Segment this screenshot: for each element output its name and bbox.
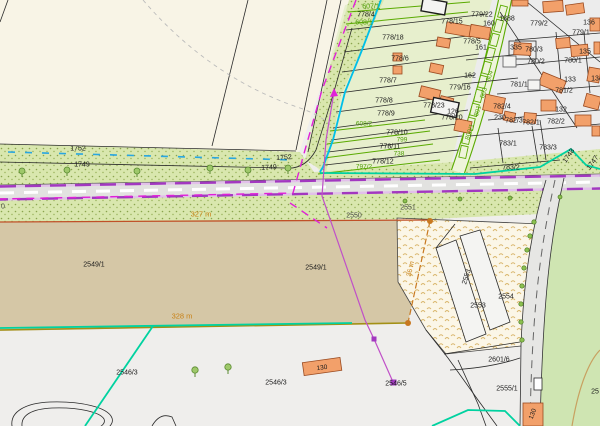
map-viewport[interactable]: 1752175217491749607/1778/4608/1778/18778…: [0, 0, 600, 426]
cadastral-map-canvas: [0, 0, 600, 426]
